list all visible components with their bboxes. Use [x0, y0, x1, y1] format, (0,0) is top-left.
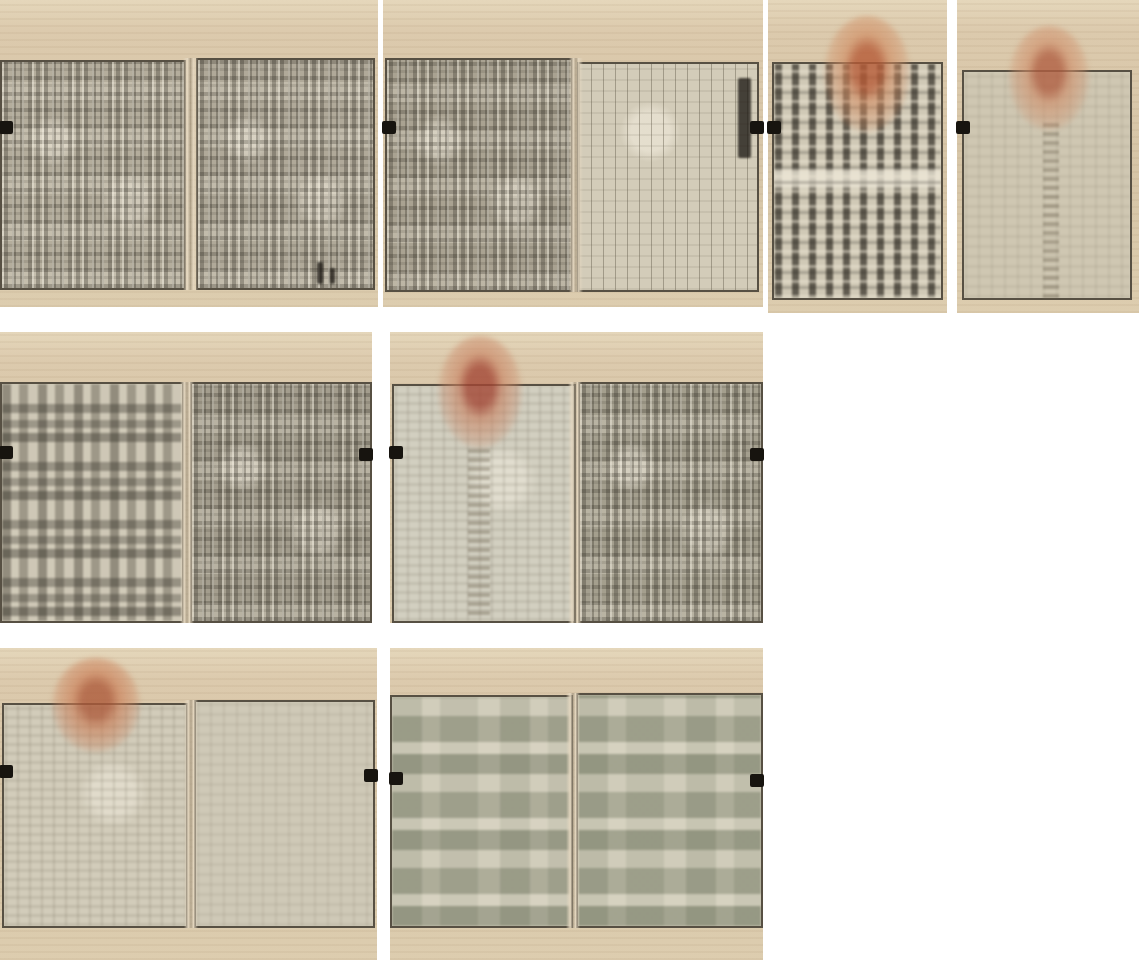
- center-fold: [568, 382, 582, 623]
- fore-edge-tab-mark: [382, 121, 396, 134]
- spread-4-seal-page-and-text: [390, 332, 763, 623]
- faint-text-column: [468, 447, 490, 615]
- page-text-texture: [196, 702, 373, 926]
- spread-3-contents-and-text: [0, 332, 372, 623]
- spread-2-text-and-blank-ruled-page: [383, 0, 763, 307]
- fore-edge-tab-mark: [0, 121, 13, 134]
- page-text-texture: [192, 384, 370, 621]
- spread-1-text-pages: [0, 0, 378, 307]
- spread-5-seal-page-and-light-text: [0, 648, 377, 960]
- page-text-texture: [387, 60, 571, 290]
- fore-edge-tab-mark: [956, 121, 970, 134]
- page-text-texture: [198, 60, 373, 288]
- fore-edge-tab-mark: [0, 446, 13, 459]
- fore-edge-tab-mark: [750, 121, 764, 134]
- page-text-texture: [579, 64, 757, 290]
- fore-edge-tab-mark: [364, 769, 378, 782]
- ink-smudge: [330, 268, 335, 284]
- center-fold: [184, 700, 198, 928]
- fore-edge-tab-mark: [750, 774, 764, 787]
- book-page: [390, 695, 573, 928]
- fore-edge-tab-mark: [767, 121, 781, 134]
- book-page: [0, 60, 186, 290]
- page-text-texture: [578, 695, 761, 926]
- page-text-texture: [2, 384, 182, 621]
- title-page-with-seal: [768, 0, 947, 313]
- fore-edge-tab-mark: [359, 448, 373, 461]
- book-page: [578, 382, 763, 623]
- fore-edge-tab-mark: [0, 765, 13, 778]
- center-fold: [566, 693, 580, 928]
- center-fold: [183, 58, 198, 290]
- fore-edge-tab-mark: [389, 772, 403, 785]
- book-page: [194, 700, 375, 928]
- red-collector-seal: [52, 658, 140, 752]
- book-page: [576, 693, 763, 928]
- book-page: [196, 58, 375, 290]
- center-fold: [569, 58, 583, 292]
- faded-page-with-seal: [957, 0, 1139, 313]
- book-page: [385, 58, 573, 292]
- red-collector-seal: [438, 336, 522, 448]
- page-text-texture: [580, 384, 761, 621]
- red-collector-seal: [824, 16, 910, 132]
- book-page: [0, 382, 184, 623]
- page-text-texture: [2, 62, 184, 288]
- center-fold: [180, 382, 194, 623]
- red-collector-seal: [1009, 26, 1089, 130]
- fore-edge-tab-mark: [389, 446, 403, 459]
- fore-edge-tab-mark: [750, 448, 764, 461]
- ink-smudge: [317, 262, 323, 284]
- book-page: [190, 382, 372, 623]
- book-page: [577, 62, 759, 292]
- spread-6-block-printed-pages: [390, 648, 763, 960]
- ink-smudge: [738, 78, 751, 158]
- antique-book-spreads-collage: [0, 0, 1139, 960]
- page-text-texture: [392, 697, 571, 926]
- faint-text-column: [1043, 120, 1059, 298]
